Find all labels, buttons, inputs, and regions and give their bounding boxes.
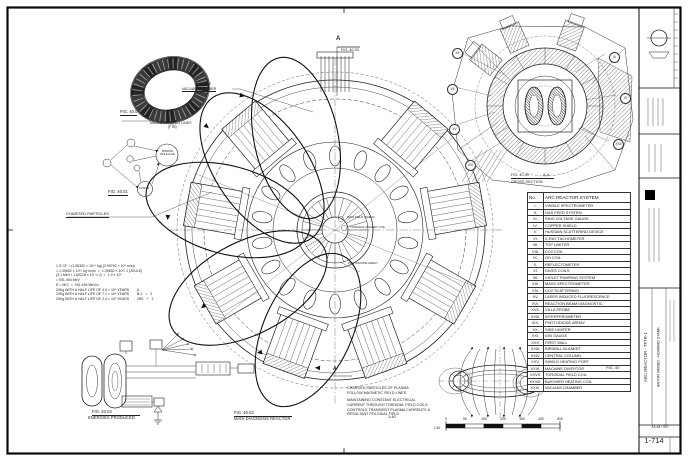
main-center-label: TOROIDAL MAGNET COIL [350, 226, 385, 229]
current-note-line: CURRENT THROUGH TOROIDAL FIELD COILS [347, 403, 430, 408]
fusion-label: FUSION [139, 187, 149, 190]
scale-tick-label: 400 [538, 417, 544, 421]
titleblock-sheet-number: 1-714 [639, 437, 669, 446]
titleblock-author: ANTON VAMBO - HOWARD STARK [653, 294, 664, 420]
parts-table-fig-ref: FIG. 40 [606, 366, 619, 371]
callout-balloon: VII [447, 84, 458, 95]
mirror-molecule-label: MIRROR MOLECULE [159, 150, 176, 156]
callout-balloon: XV [449, 124, 460, 135]
current-note: MAINTAINING CONSTANT ELECTRICALCURRENT T… [347, 398, 430, 417]
scale-bar [446, 421, 560, 431]
scale-tick-label: 200 [500, 417, 506, 421]
cross-section-figure [451, 12, 633, 188]
ftb-label: (FTB) [168, 126, 177, 130]
plasma-note: CHARGED PARTICLES OF PLASMAFOLLOW MAGNET… [347, 386, 409, 396]
parts-table-header: No. ARC REACTOR SYSTEM [528, 193, 631, 203]
parts-table: No. ARC REACTOR SYSTEM I.VISIBLE SPECTRO… [527, 192, 631, 392]
charged-particles-label: CHARGED PARTICLES [66, 212, 109, 218]
fig-cross-caption: CROSS SECTION [511, 180, 542, 184]
section-marker-letter: A [336, 36, 340, 43]
callout-balloon: IX [620, 93, 631, 104]
scale-bar-ratio: 1:40 [434, 427, 440, 431]
fig-molecule-label: FIG. 40.01 [108, 190, 128, 196]
scale-tick-label: 0 [445, 417, 447, 421]
fig-main-caption: MAIN DIAGNOSIS REACTOR [234, 417, 290, 422]
callout-balloon: IV [609, 52, 620, 63]
callout-balloon: XII [452, 48, 463, 59]
parts-header-title: ARC REACTOR SYSTEM [544, 193, 631, 203]
parts-table-row: XXIX.VACUUM CHAMBER [528, 385, 631, 392]
plasma-note-line: FOLLOW MAGNETIC FIELD LINES [347, 391, 409, 396]
mirror-line2: MOLECULE [160, 153, 175, 156]
main-center-label: PHOTODIODE ARRAY [348, 262, 378, 265]
fig-energy-caption: ENERGIES PRODUCED [88, 416, 135, 421]
titleblock-format: A3-A4 / ISO [640, 426, 680, 430]
vacuum-chamber-label: VACUUM CHAMBER [182, 87, 216, 92]
formula-notes-line: 20Kg WITH A HALF LIFE OF 2.4 × 10⁵ YEARS… [56, 297, 153, 302]
section-marker-bottom: A [333, 367, 337, 373]
callout-balloon: XXI [465, 160, 476, 171]
parts-header-no: No. [528, 193, 544, 203]
titleblock-title: ARC REACTOR - TFTR-1 [641, 292, 652, 422]
current-note-line: RESULTANT POLOIDAL FIELD [347, 412, 430, 417]
fig-torus-label: FIG. 40.0 [120, 110, 137, 116]
section-marker-fig: FIG. 40.00 [341, 48, 359, 52]
scale-tick-label: 500 [557, 417, 563, 421]
scale-tick-label: 300 [519, 417, 525, 421]
part-no: XXVIII. [528, 378, 544, 385]
scale-tick-label: 100 [481, 417, 487, 421]
part-no: XXIX. [528, 385, 544, 392]
formula-notes: 1 G CF = (1.55352 × 10⁴⁴ kg) (2.99792 × … [56, 264, 153, 302]
part-name: VACUUM CHAMBER [544, 385, 631, 392]
fig-cross-underline [511, 173, 554, 179]
blueprint-sheet: A FIG. 40.00 A FIG. 40.0 MAGNETIC FIELD … [0, 0, 688, 461]
main-center-label: MAIN FIELD SHIELD [347, 216, 374, 219]
parts-table-body: I.VISIBLE SPECTROMETERII.GAS FEED SYSTEM… [528, 203, 631, 392]
scale-tick-label: 50 [463, 417, 467, 421]
vacuum-callout-code: G0800 [200, 82, 211, 86]
callout-balloon: XXII [613, 139, 624, 150]
